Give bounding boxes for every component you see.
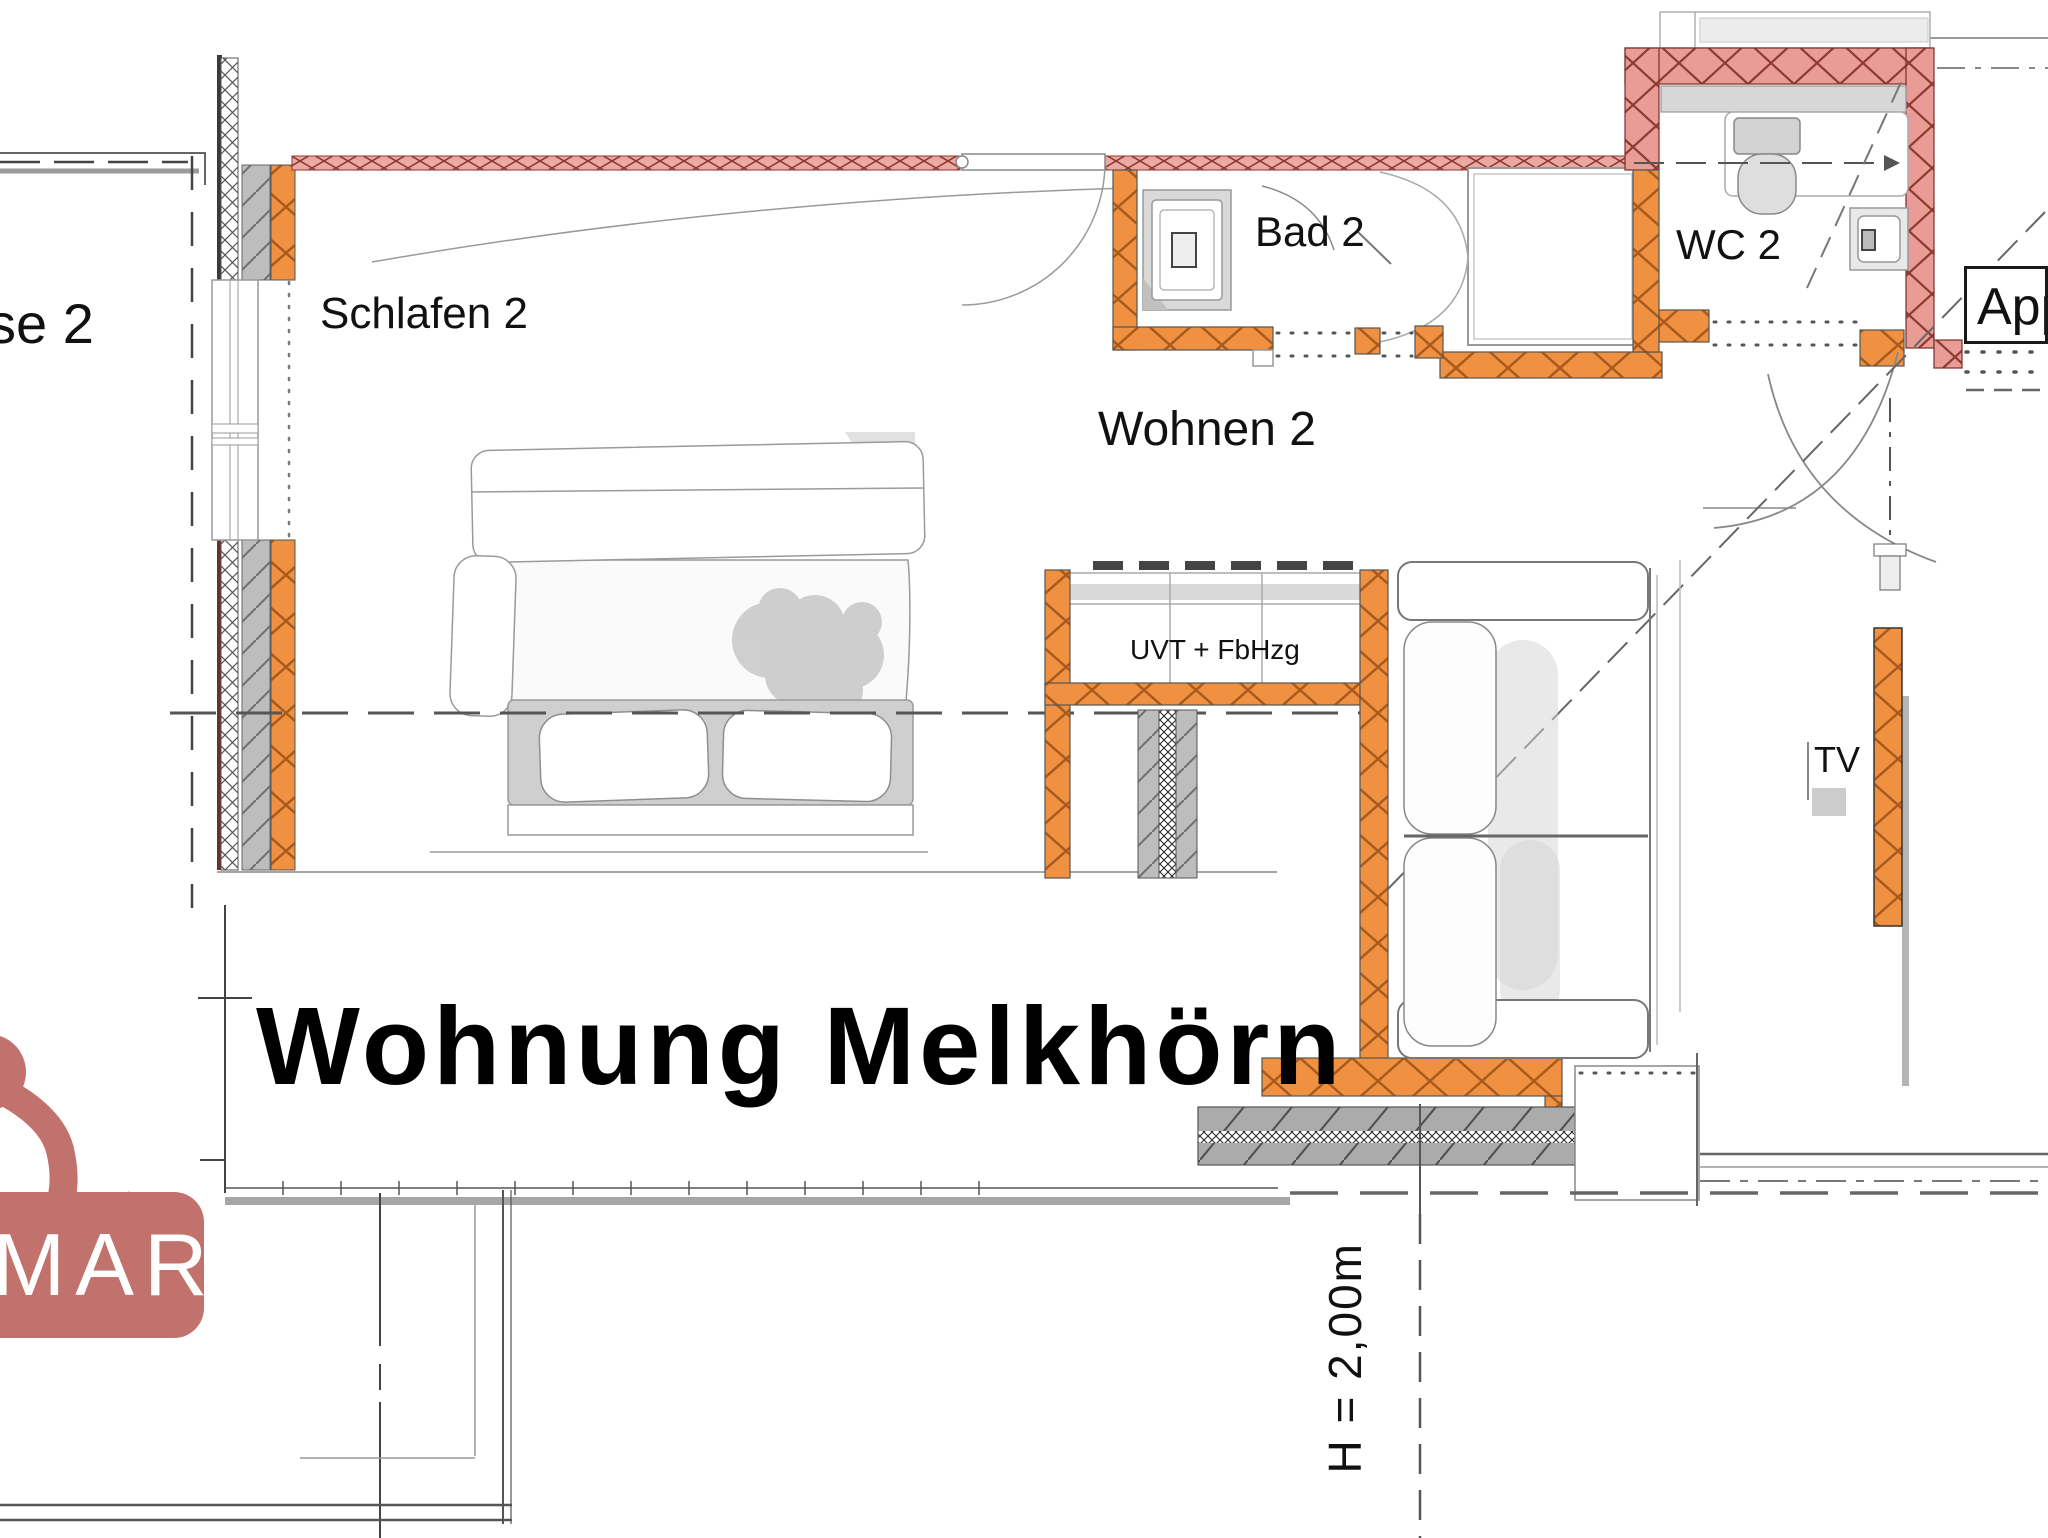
room-label-appartement: App [1977,277,2045,337]
door-schlafen-top [372,154,1126,305]
logo-bird-icon [0,1034,64,1196]
logo-badge: MAR [0,1192,204,1338]
partition-wall [1138,710,1197,878]
terrace-edge-lines [0,153,206,908]
window-schlafen [212,280,289,540]
room-label-terrasse: sse 2 [0,296,94,352]
sofa [1398,560,1680,1058]
height-annotation: H = 2,00m [1322,1242,1368,1474]
room-label-schlafen: Schlafen 2 [320,292,528,336]
floor-plan: sse 2 Schlafen 2 Wohnen 2 Bad 2 WC 2 UVT… [0,0,2048,1538]
annotation-tv: TV [1814,742,1860,778]
room-label-appartement-box: App [1964,266,2048,344]
page-title: Wohnung Melkhörn [256,992,1344,1102]
room-label-wohnen: Wohnen 2 [1098,406,1316,454]
bed [430,432,928,852]
tv-unit [1812,788,1846,816]
room-label-bad: Bad 2 [1255,211,1365,253]
washbasin-wc [1850,208,1908,270]
toilet [1734,118,1800,214]
washbasin-bad [1143,190,1231,310]
wardrobe-uvt [1045,561,1388,878]
entrance-door-arcs [1703,352,1936,562]
cabinet-door-track [1093,561,1353,570]
corridor-dotted-lines [1966,352,2046,390]
logo-text: MAR [0,1214,218,1316]
room-label-wc: WC 2 [1676,224,1781,266]
annotation-uvt: UVT + FbHzg [1130,636,1300,664]
